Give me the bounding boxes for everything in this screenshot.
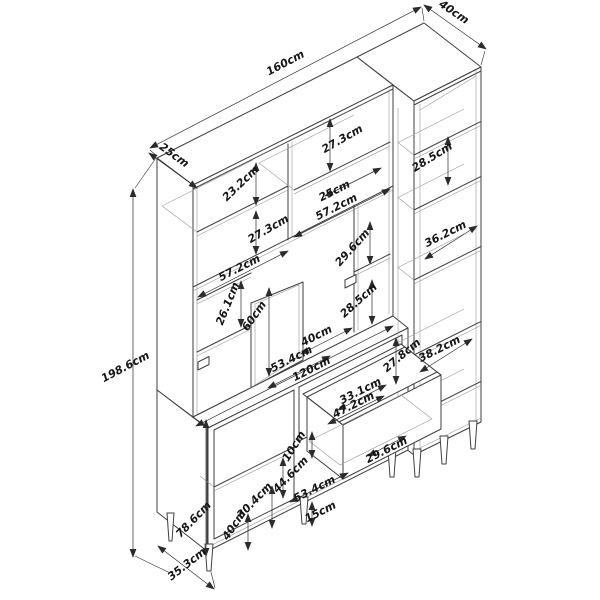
technical-drawing-page: 160cm40cm25cm198.6cm23.2cm27.3cm57.2cm27… bbox=[0, 0, 600, 600]
dimension-label-d1986: 198.6cm bbox=[99, 349, 152, 385]
cabinet-dimension-drawing: 160cm40cm25cm198.6cm23.2cm27.3cm57.2cm27… bbox=[0, 0, 600, 600]
dimension-label-d353: 35.3cm bbox=[165, 545, 209, 583]
dimension-label-d160: 160cm bbox=[264, 48, 306, 79]
dimension-label-d40top: 40cm bbox=[436, 0, 472, 27]
